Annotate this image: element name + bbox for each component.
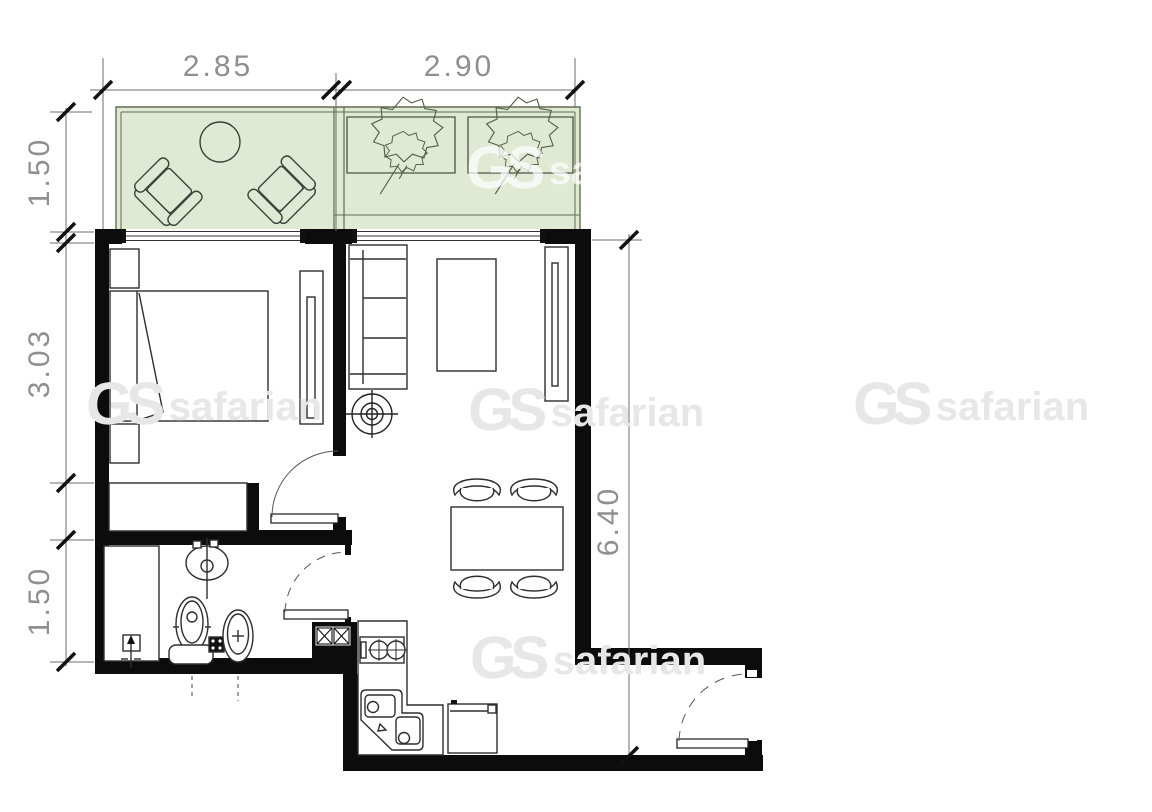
built-in-closet: [109, 483, 247, 531]
window-bedroom: [122, 229, 305, 243]
nightstand: [110, 424, 139, 463]
dim-label-left-bedroom: 3.03: [25, 303, 55, 423]
wall-corridor-top: [575, 648, 747, 665]
ventilation-shaft-symbol: [315, 626, 351, 646]
dining-chair: [454, 479, 501, 501]
dim-label-right-living: 6.40: [594, 461, 624, 581]
wall-bottom-exterior: [343, 755, 763, 771]
dining-chair: [511, 576, 558, 598]
nightstand: [110, 249, 139, 288]
radiator: [545, 247, 568, 401]
refrigerator: [448, 700, 497, 753]
floor-drain: [209, 637, 224, 652]
wall-right-exterior: [575, 232, 591, 659]
dining-table: [451, 507, 563, 570]
kitchen: [358, 621, 497, 755]
bathroom-door: [284, 552, 348, 619]
washbasin: [186, 538, 228, 599]
entry-door: [677, 670, 757, 748]
bidet: [223, 610, 253, 701]
shower-tray: [104, 546, 159, 668]
floor-plan-canvas: 2.85 2.90 1.50 3.03 1.50 6.40 GS safaria…: [0, 0, 1152, 812]
ceiling-fan-symbol: [346, 390, 398, 438]
dining-chair: [454, 576, 501, 598]
floor-plan-drawing: [0, 0, 1152, 812]
bedroom-door: [271, 451, 338, 523]
window-living: [352, 229, 545, 243]
coffee-table: [437, 259, 496, 371]
living-room: [346, 245, 568, 570]
wall-bedroom-bathroom: [95, 530, 352, 545]
bedroom: [109, 249, 323, 531]
stove: [360, 637, 407, 663]
dim-label-top-left: 2.85: [158, 52, 278, 82]
dim-label-left-balcony: 1.50: [25, 112, 55, 232]
round-table: [200, 122, 240, 162]
toilet: [169, 597, 213, 698]
balcony-terrace: [116, 97, 580, 232]
double-bed: [110, 291, 268, 421]
dim-label-top-right: 2.90: [399, 52, 519, 82]
wall-kitchen-left: [343, 674, 358, 758]
wall-bedroom-living: [333, 244, 346, 456]
dining-chair: [511, 479, 558, 501]
dim-label-left-bathroom: 1.50: [25, 541, 55, 661]
bathroom: [104, 538, 253, 701]
sofa: [349, 245, 407, 389]
